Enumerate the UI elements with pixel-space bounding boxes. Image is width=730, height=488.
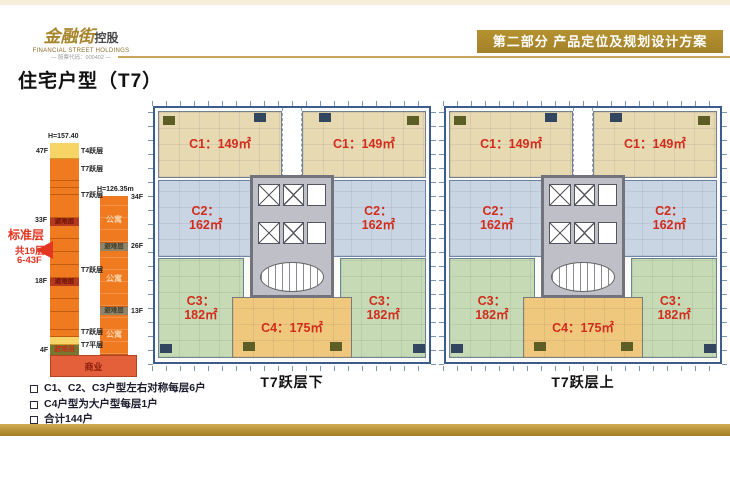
unit-area: 182㎡ [475, 308, 508, 322]
commercial-band: 商业 [50, 355, 137, 377]
unit-c3-right: C3：182㎡ [631, 258, 717, 358]
floor-plan-lower: C1：149㎡ C1：149㎡ C2：162㎡ C2：162㎡ C3：182㎡ … [153, 106, 431, 364]
unit-name: C4： [552, 321, 580, 335]
corner-block [704, 344, 716, 353]
floor-label-47f: 47F [36, 148, 48, 155]
elevator-bank [549, 184, 617, 206]
tower-segment [50, 312, 79, 330]
unit-c2-left: C2：162㎡ [158, 180, 254, 256]
refuge-floor-band: 避难层 [50, 218, 79, 226]
machine-room [307, 222, 326, 244]
corner-block [454, 116, 466, 125]
unit-area: 162㎡ [189, 218, 222, 232]
corner-block [413, 344, 425, 353]
unit-area: 162㎡ [653, 218, 686, 232]
apartment-segment: 公寓 [100, 315, 128, 355]
dimension-ticks [443, 101, 723, 106]
unit-label: C1：149㎡ [189, 137, 251, 151]
stair-icon [551, 262, 614, 292]
corner-block [160, 344, 172, 353]
unit-c2-right: C2：162㎡ [330, 180, 426, 256]
logo-brand: 金融街 [43, 27, 94, 47]
footer-gold-bar [0, 424, 730, 436]
unit-name: C4： [261, 321, 289, 335]
corner-block [243, 342, 255, 351]
dimension-ticks [443, 366, 723, 371]
dimension-ticks [152, 101, 432, 106]
apartment-segment: 公寓 [100, 196, 128, 243]
unit-area: 149㎡ [653, 137, 686, 151]
tower-segment-t7-flat [50, 337, 79, 345]
unit-label: C2：162㎡ [189, 204, 222, 233]
corner-block [330, 342, 342, 351]
square-bullet-icon [30, 401, 38, 409]
corner-block [545, 113, 557, 122]
square-bullet-icon [30, 385, 38, 393]
floor-plan-upper: C1：149㎡ C1：149㎡ C2：162㎡ C2：162㎡ C3：182㎡ … [444, 106, 722, 364]
unit-label: C2：162㎡ [362, 204, 395, 233]
unit-name: C2： [364, 204, 392, 218]
tower-segment [50, 181, 79, 188]
corner-block [163, 116, 175, 125]
label-t7-duplex: T7跃层 [81, 265, 103, 275]
dimension-ticks [148, 105, 153, 365]
corner-block [407, 116, 419, 125]
tower-segment [50, 226, 79, 239]
refuge-floor-band: 避难层 [100, 243, 128, 251]
dimension-ticks [439, 105, 444, 365]
tower-left-height-label: H=157.40 [48, 133, 79, 140]
dimension-ticks [431, 105, 436, 365]
corner-block [254, 113, 266, 122]
elevator-icon [283, 222, 305, 244]
unit-label: C2：162㎡ [653, 204, 686, 233]
machine-room [307, 184, 326, 206]
note-text: C1、C2、C3户型左右对称每层6户 [44, 383, 206, 395]
refuge-floor-band: 避难层 [100, 307, 128, 315]
elevator-icon [574, 222, 596, 244]
unit-label: C1：149㎡ [480, 137, 542, 151]
unit-name: C2： [482, 204, 510, 218]
corner-block [698, 116, 710, 125]
machine-room [598, 222, 617, 244]
unit-label: C3：182㎡ [366, 294, 399, 323]
floor-label-18f: 18F [35, 278, 47, 285]
elevator-bank [258, 222, 326, 244]
unit-area: 182㎡ [657, 308, 690, 322]
dimension-ticks [152, 366, 432, 371]
corner-block [319, 113, 331, 122]
label-t7-flat: T7平层 [81, 340, 103, 350]
notes-list: C1、C2、C3户型左右对称每层6户 C4户型为大户型每层1户 合计144户 [30, 383, 206, 426]
corner-block [621, 342, 633, 351]
unit-area: 162㎡ [480, 218, 513, 232]
unit-label: C4：175㎡ [261, 321, 323, 335]
refuge-floor-band: 避难层 [50, 345, 79, 355]
unit-c3-right: C3：182㎡ [340, 258, 426, 358]
slide: 金融街控股 FINANCIAL STREET HOLDINGS — 股票代码：0… [0, 0, 730, 488]
unit-name: C1： [480, 137, 508, 151]
header-divider-line [118, 56, 730, 58]
label-t4-duplex: T4跃层 [81, 146, 103, 156]
refuge-floor-band: 避难层 [50, 278, 79, 286]
logo-subtitle: FINANCIAL STREET HOLDINGS [26, 48, 136, 55]
tower-segment [50, 239, 79, 252]
tower-segment [50, 195, 79, 218]
note-item: C1、C2、C3户型左右对称每层6户 [30, 383, 206, 395]
elevator-bank [549, 222, 617, 244]
tower-segment [50, 188, 79, 195]
unit-label: C3：182㎡ [657, 294, 690, 323]
unit-name: C3： [187, 294, 215, 308]
floor-label-4f: 4F [40, 347, 48, 354]
unit-c2-right: C2：162㎡ [621, 180, 717, 256]
floor-label-26f: 26F [131, 243, 143, 250]
unit-c2-left: C2：162㎡ [449, 180, 545, 256]
unit-label: C3：182㎡ [475, 294, 508, 323]
unit-label: C2：162㎡ [480, 204, 513, 233]
unit-area: 182㎡ [184, 308, 217, 322]
tower-right-elevation: 公寓 避难层 公寓 避难层 公寓 [100, 196, 128, 355]
square-bullet-icon [30, 416, 38, 424]
elevator-icon [283, 184, 305, 206]
unit-name: C2： [655, 204, 683, 218]
unit-label: C4：175㎡ [552, 321, 614, 335]
dimension-ticks [722, 105, 727, 365]
unit-area: 149㎡ [362, 137, 395, 151]
elevator-icon [549, 184, 571, 206]
unit-area: 175㎡ [290, 321, 323, 335]
unit-name: C3： [660, 294, 688, 308]
unit-name: C3： [369, 294, 397, 308]
floor-label-33f: 33F [35, 217, 47, 224]
tower-segment [50, 299, 79, 312]
label-t7-duplex: T7跃层 [81, 327, 103, 337]
floor-label-34f: 34F [131, 194, 143, 201]
unit-area: 182㎡ [366, 308, 399, 322]
logo-brand-line: 金融街控股 [26, 28, 136, 47]
top-shaft [282, 108, 301, 177]
note-item: C4户型为大户型每层1户 [30, 399, 206, 411]
corner-block [610, 113, 622, 122]
tower-segment [50, 330, 79, 337]
corner-block [534, 342, 546, 351]
unit-area: 149㎡ [509, 137, 542, 151]
stair-icon [260, 262, 323, 292]
tower-segment-t4-duplex [50, 143, 79, 159]
tower-segment [50, 252, 79, 265]
tower-segment [50, 159, 79, 181]
label-t7-duplex: T7跃层 [81, 164, 103, 174]
apartment-segment: 公寓 [100, 251, 128, 307]
unit-name: C1： [624, 137, 652, 151]
unit-area: 162㎡ [362, 218, 395, 232]
elevator-icon [258, 222, 280, 244]
unit-area: 149㎡ [218, 137, 251, 151]
unit-label: C1：149㎡ [333, 137, 395, 151]
unit-label: C3：182㎡ [184, 294, 217, 323]
core-shaft [250, 175, 335, 298]
unit-name: C3： [478, 294, 506, 308]
unit-name: C2： [191, 204, 219, 218]
unit-label: C1：149㎡ [624, 137, 686, 151]
section-banner: 第二部分 产品定位及规划设计方案 [477, 30, 723, 53]
corner-block [451, 344, 463, 353]
left-arrow-icon [36, 241, 53, 259]
elevator-icon [574, 184, 596, 206]
label-t7-duplex: T7跃层 [81, 190, 103, 200]
note-text: C4户型为大户型每层1户 [44, 399, 158, 411]
plan-caption-upper: T7跃层上 [446, 372, 720, 392]
floor-label-13f: 13F [131, 308, 143, 315]
top-shaft [573, 108, 592, 177]
tower-segment [50, 265, 79, 278]
unit-name: C1： [189, 137, 217, 151]
page-title: 住宅户型（T7） [18, 66, 162, 93]
logo-suffix: 控股 [94, 31, 118, 45]
elevator-bank [258, 184, 326, 206]
elevator-icon [549, 222, 571, 244]
tower-segment [50, 286, 79, 299]
core-shaft [541, 175, 626, 298]
elevator-icon [258, 184, 280, 206]
top-edge-strip [0, 0, 730, 5]
unit-area: 175㎡ [581, 321, 614, 335]
unit-name: C1： [333, 137, 361, 151]
machine-room [598, 184, 617, 206]
tower-left-elevation: 避难层 避难层 避难层 [50, 143, 79, 355]
